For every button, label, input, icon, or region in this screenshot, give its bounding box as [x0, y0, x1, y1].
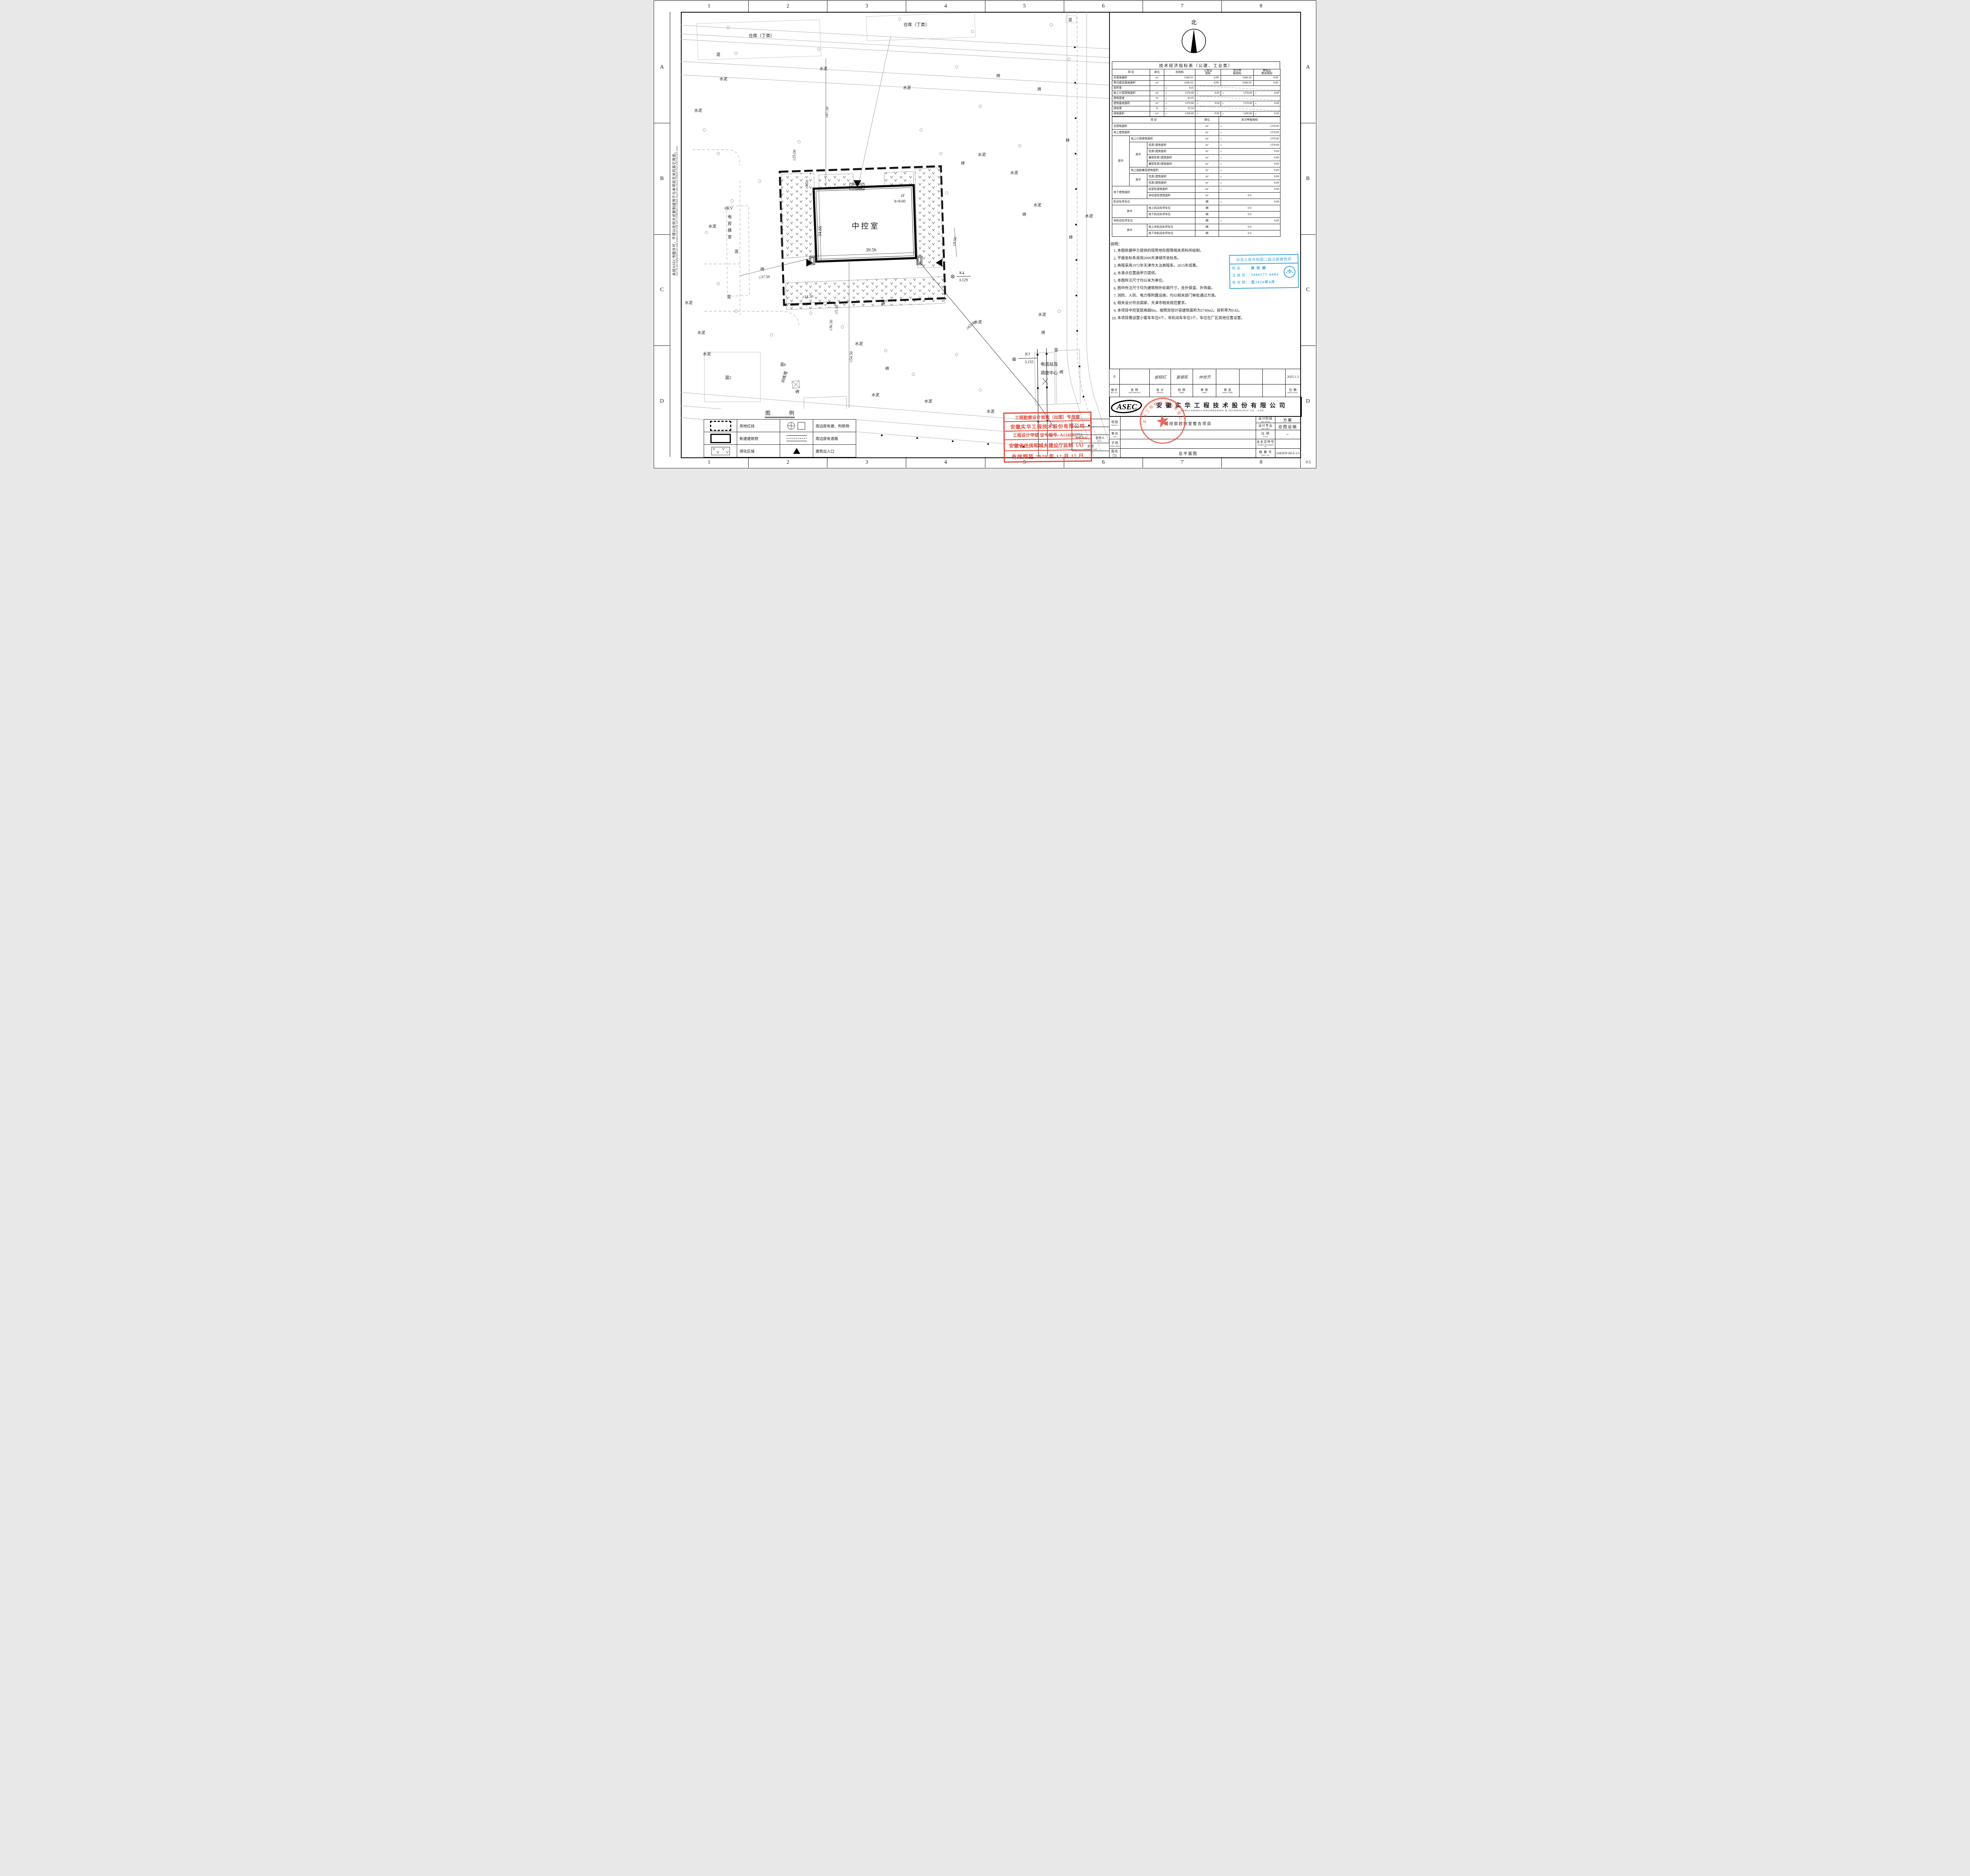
table-cell: 性质2建筑面积	[1147, 180, 1195, 186]
table-cell: 0.0	[1219, 230, 1280, 236]
grid-ref: C	[1300, 234, 1316, 346]
plan-label: 水泥	[903, 85, 911, 90]
legend-label: 建筑出入口	[813, 445, 856, 457]
table-cell: 项 目	[1112, 117, 1195, 123]
grid-band-left: ABCD	[654, 12, 670, 457]
drawing-sheet: 12345678 12345678 ABCD ABCD 0.5 未经ASEC书面…	[653, 0, 1317, 469]
legend-symbol-green-icon	[704, 447, 737, 455]
plan-label: 水泥	[1033, 202, 1041, 208]
grid-ref: 6	[1064, 1, 1143, 12]
plan-label: 混	[734, 249, 738, 254]
table-cell: ≤0.41	[1164, 85, 1195, 91]
north-arrow: 北	[1180, 18, 1208, 56]
table-cell: ≤0.00	[1254, 91, 1280, 96]
table-cell: ≥1200.00	[1221, 111, 1254, 116]
plan-label: 砖	[760, 267, 764, 272]
grid-ref: 5	[985, 1, 1064, 12]
grid-ref: 7	[1143, 457, 1221, 468]
plan-label: 39.56	[866, 247, 876, 253]
table-cell: m²	[1195, 192, 1219, 199]
table-cell: 0.00	[1195, 80, 1221, 85]
ownerdoc-value	[1275, 439, 1301, 449]
table-cell: m²	[1195, 148, 1219, 154]
table-cell: m²	[1195, 161, 1219, 167]
unit-label-cell: 单元UNIT	[1110, 430, 1121, 439]
table-cell: 性质2建筑面积	[1147, 148, 1195, 154]
table-cell: 容积率	[1112, 85, 1150, 91]
sheet-scale-corner: 0.5	[1300, 457, 1316, 468]
arch-name-label: 姓 名：	[1232, 265, 1251, 271]
table-cell: 辆	[1195, 217, 1219, 224]
table-cell: 地上鼓励兼容建筑面积	[1130, 167, 1195, 173]
signature-cell: 景银民	[1171, 368, 1193, 385]
table-cell: 其中	[1130, 173, 1147, 186]
signature-cell	[1263, 369, 1286, 384]
table-cell: m²	[1150, 91, 1164, 96]
countersign-empty-cell	[1091, 427, 1110, 435]
arch-name: 袁 宏 康	[1251, 265, 1266, 270]
red-stamp-line: 工程设计甲级 证书编号: A134005772	[1005, 430, 1091, 440]
table-cell: ≤0.00	[1219, 167, 1280, 173]
plan-label: 器	[728, 228, 732, 233]
table-cell: m²	[1150, 101, 1164, 106]
stage-value: 方案	[1275, 416, 1301, 423]
plan-label: 中 控 室	[852, 222, 878, 230]
signature-cell: 仲世杰	[1193, 368, 1217, 385]
plan-label: 水泥	[703, 351, 711, 357]
table-cell: 地上建筑面积	[1112, 129, 1195, 136]
grid-ref: 4	[906, 457, 985, 468]
rev-header-cell	[1263, 384, 1286, 397]
rev-header-cell: 日 期ISSUE DATE.	[1286, 384, 1301, 397]
grid-ref: A	[1300, 12, 1316, 123]
table-cell: ≤1370.00	[1221, 101, 1254, 106]
table-cell: 界内建设用地面积	[1112, 80, 1150, 85]
table-cell: m²	[1150, 111, 1164, 116]
plan-label: ≥14.50	[802, 295, 813, 299]
table-cell: m²	[1195, 142, 1219, 148]
table-cell: 总建筑面积	[1112, 123, 1195, 129]
plan-label: 水泥	[872, 392, 879, 397]
plan-label: 砖	[1069, 235, 1073, 240]
table-cell: 地上计容建筑面积	[1130, 136, 1195, 142]
plan-label: ≥54.50	[849, 351, 853, 363]
table-cell: 非经营性建筑面积	[1147, 192, 1195, 199]
table-cell: 项 目	[1112, 69, 1150, 76]
dwgname-label-cell: 图名DWG . NAME	[1110, 449, 1121, 458]
table-cell: 性质1建筑面积	[1147, 142, 1195, 148]
grid-ref: C	[654, 234, 670, 346]
plan-label: 水泥	[1038, 312, 1046, 317]
table-cell: m²	[1150, 75, 1164, 80]
note-item: 9.本项目中控室层高超8m，按照双倍计容建筑面积为2740m2。容积率为0.82…	[1110, 307, 1295, 315]
table-cell: 地下非机动车停车位	[1147, 230, 1195, 236]
legend-symbol-entrance-icon	[780, 448, 813, 454]
table-cell: ≤1370.00	[1164, 101, 1195, 106]
red-stamp-line: 有效期至 2029 年 12 月 17 日	[1005, 449, 1091, 462]
table-cell: 3340.50	[1221, 75, 1254, 80]
workarea-label-cell: 子项WORK AREA	[1110, 439, 1121, 449]
dwgname-value: 总平面图	[1121, 449, 1256, 458]
plan-label: K3	[1025, 352, 1030, 357]
plan-label: 砖	[885, 366, 889, 371]
plan-label: 混	[1054, 348, 1058, 353]
table-cell: 兼容性质1建筑面积	[1147, 154, 1195, 161]
margin-disclaimer-en: NOT TO BE REPRODUCED NOR EMPLOYED FOR AN…	[676, 145, 678, 276]
plan-label: K4	[959, 271, 964, 275]
stage-label-cell: 设计阶段DES. STAGE	[1256, 416, 1275, 423]
arch-reg-number: 3400577-0004	[1251, 272, 1279, 277]
legend-label: 新建建筑物	[737, 432, 780, 445]
plan-label: 水泥	[1085, 214, 1093, 219]
plan-label: 水泥	[974, 319, 982, 325]
rev-number: 0	[1110, 369, 1120, 384]
signature-cell: 郝栩红	[1149, 368, 1171, 385]
rev-header-cell	[1240, 384, 1263, 397]
plan-label: ≥25.00	[792, 150, 797, 161]
plan-label: 水泥	[697, 330, 705, 335]
rev-header-cell: 审 定FINAL APPR.	[1216, 384, 1240, 397]
table-cell: 辆	[1195, 205, 1219, 211]
grid-ref: 8	[1221, 457, 1300, 468]
table-cell: m²	[1195, 180, 1219, 186]
table-cell: 其中	[1130, 142, 1147, 167]
plan-label: 砖	[996, 73, 1000, 78]
legend: 图 例 用地红线 周边原有建、构筑物 新建建筑物 周边原有道路	[704, 409, 856, 457]
table-cell: 机动车停车位	[1112, 199, 1195, 205]
arch-reg-label: 注 册 号：	[1232, 272, 1251, 278]
signature-cell	[1240, 369, 1263, 384]
table-cell: 地下机动车停车位	[1147, 211, 1195, 217]
note-item: 10.本项目需设置小客车车位6个，非机动车车位3个，车位在厂区其他位置设置。	[1110, 315, 1295, 322]
grid-ref: 7	[1143, 1, 1221, 12]
table-cell: 已发证 指标	[1195, 69, 1221, 76]
plan-label: 水泥	[924, 399, 932, 404]
site-plan: 仓库（丁类）仓库（丁类）混混水泥水泥水泥砖砖砖≥67.50≥25.00≥8.50…	[681, 12, 1109, 457]
legend-title: 图 例	[704, 409, 856, 416]
plan-label: 混	[727, 295, 731, 299]
table-cell	[1195, 106, 1280, 111]
revision-table: 0郝栩红景银民仲世杰2025.1.3版次REV. NO.说 明DESCRIPTI…	[1109, 369, 1301, 397]
plan-label: 3.155	[1025, 360, 1034, 364]
legend-label: 用地红线	[737, 420, 780, 432]
red-stamp-line: 安徽实华工程技术股份有限公司	[1005, 420, 1091, 431]
plan-label: 砖	[795, 389, 799, 394]
table-cell: 审批后 剩余指标	[1254, 69, 1280, 76]
grid-ref: A	[654, 12, 670, 123]
table-cell: ≥0.00	[1219, 217, 1280, 224]
table-cell: 地上机动车停车位	[1147, 205, 1195, 211]
speci-label-cell: 设计专业DES. SPECI	[1256, 423, 1275, 430]
plan-label: 混2	[725, 375, 732, 380]
table-cell: ≤1370.00	[1221, 91, 1254, 96]
table-cell: ≤0.00	[1219, 186, 1280, 192]
grid-ref: D	[1300, 345, 1316, 457]
table-cell: m²	[1195, 129, 1219, 136]
table-cell: %	[1150, 106, 1164, 111]
notes-title: 说明：	[1110, 241, 1295, 247]
north-label: 北	[1191, 20, 1197, 26]
table-cell: 地上计容建筑面积	[1112, 91, 1150, 96]
registered-architect-stamp: 中华人民共和国二级注册建筑师 姓 名： 袁 宏 康 注 册 号： 3400577…	[1229, 254, 1299, 289]
plan-label: 砖	[1041, 330, 1045, 335]
table-cell: 总指标	[1164, 69, 1195, 76]
plan-label: 砖	[1066, 138, 1070, 143]
plan-label: 调度中心	[1041, 370, 1058, 375]
speci-value: 总图运输	[1275, 423, 1301, 430]
arch-valid-label: 有 效 期：	[1232, 279, 1251, 285]
plan-label: ≥36.50	[829, 320, 833, 331]
plan-label: 砖	[1022, 212, 1026, 217]
plan-label: 水泥	[820, 66, 827, 71]
legend-symbol-redline-icon	[704, 421, 737, 431]
table-cell: 3340.50	[1221, 80, 1254, 85]
table-cell: 0.0	[1219, 224, 1280, 230]
table-cell: m²	[1195, 186, 1219, 192]
rev-header-cell: 版次REV. NO.	[1110, 384, 1120, 397]
grid-ref: 2	[748, 457, 827, 468]
company-round-seal: 安徽实华工程技术股份有限公司 ANHUI SHIHUA ENGINEERING …	[1134, 392, 1191, 449]
note-item: 8.相关设计符合国家、天津市相关规范要求。	[1110, 300, 1295, 307]
table-cell: 其中	[1112, 224, 1147, 236]
plan-label: ≥37.50	[759, 275, 770, 279]
table-cell: ≤0.00	[1219, 180, 1280, 186]
grid-ref: B	[1300, 123, 1316, 234]
table-cell	[1195, 96, 1280, 101]
table-cell: ≤0.00	[1219, 148, 1280, 154]
table-cell: 本次申 报指标	[1221, 69, 1254, 76]
plan-label: 砖	[1037, 87, 1041, 92]
table-cell: 其中	[1112, 205, 1147, 217]
grid-ref: 1	[670, 1, 748, 12]
table-cell: 辆	[1195, 199, 1219, 205]
plan-label: 水泥	[855, 341, 863, 346]
table-cell: ≥0.00	[1219, 199, 1280, 205]
table-cell: ≥0.00	[1254, 111, 1280, 116]
plan-label: 砖	[961, 161, 965, 166]
table-cell: ≤1370.00	[1219, 142, 1280, 148]
table-cell: ≤1370.00	[1219, 129, 1280, 136]
plan-label: ≥8.50	[805, 180, 809, 189]
workarea-value	[1121, 439, 1256, 449]
table-cell: ≤1370.00	[1164, 91, 1195, 96]
table-cell: m²	[1195, 173, 1219, 180]
plan-label: 室	[728, 234, 732, 240]
table-cell: m²	[1195, 136, 1219, 142]
table-cell: 建筑基底面积	[1112, 101, 1150, 106]
plan-label: 6KV	[725, 206, 733, 211]
plan-label: 仓库（丁类）	[749, 33, 775, 38]
plan-label: 混	[1068, 18, 1072, 22]
tech-table-title: 技术经济指标表（公建、工业类）	[1112, 61, 1280, 69]
table-cell: 性质1建筑面积	[1147, 173, 1195, 180]
table-cell: m²	[1195, 154, 1219, 161]
table-cell	[1195, 85, 1280, 91]
grid-ref: 8	[1221, 1, 1300, 12]
table-cell: 辆	[1195, 230, 1219, 236]
grid-band-right: ABCD	[1300, 12, 1316, 457]
grid-ref: 3	[827, 457, 906, 468]
table-cell: m²	[1195, 123, 1219, 129]
arch-valid-date: 至2026年4月	[1251, 279, 1275, 284]
tech-table-part1: 项 目单位总指标已发证 指标本次申 报指标审批后 剩余指标总用地面积m²3340…	[1112, 69, 1280, 117]
north-needle	[1191, 29, 1197, 53]
plan-label: 1F	[901, 194, 905, 198]
plan-label: 电	[728, 214, 732, 219]
table-cell: 经营性建筑面积	[1147, 186, 1195, 192]
table-cell: ≥0.00	[1195, 111, 1221, 116]
grid-ref: 3	[827, 1, 906, 12]
table-cell: ≤0.00	[1219, 173, 1280, 180]
table-cell: ≤41.05	[1164, 96, 1195, 101]
plan-label: 水泥	[694, 108, 702, 113]
table-cell: 0.00	[1195, 75, 1221, 80]
plan-label: 34.66	[817, 226, 823, 236]
plan-label: 水泥	[978, 152, 986, 157]
rev-header-cell: 说 明DESCRIPTION	[1120, 384, 1150, 397]
rev-header-cell: 审 核APPR.	[1193, 384, 1216, 397]
arch-stamp-emblem-icon	[1283, 265, 1296, 279]
grid-ref: B	[654, 123, 670, 234]
plan-label: ≥9.50	[952, 237, 958, 247]
table-cell: ≥35.50	[1164, 106, 1195, 111]
table-cell: ≥1200.00	[1164, 111, 1195, 116]
table-cell: 绿地率	[1112, 106, 1150, 111]
table-cell: 0.00	[1254, 75, 1280, 80]
plan-label: 混	[716, 52, 720, 57]
plan-rightcolumn-divider	[1109, 12, 1110, 369]
table-cell: 地下建筑面积	[1112, 186, 1147, 199]
note-item: 1.本图依据甲方提供的现势地形图等相关资料所绘制。	[1110, 247, 1295, 255]
plan-label: 容	[728, 221, 732, 226]
table-cell: m²	[1150, 80, 1164, 85]
plan-label: 水泥	[719, 76, 727, 82]
table-cell: 3340.50	[1164, 75, 1195, 80]
signature-cell	[1120, 369, 1150, 384]
tech-table-part2: 项 目单位本次申报指标总建筑面积m²≤1370.00地上建筑面积m²≤1370.…	[1112, 117, 1280, 237]
legend-label: 周边原有建、构筑物	[813, 420, 856, 432]
grid-band-bottom: 12345678	[670, 457, 1300, 468]
table-cell: 3340.50	[1164, 80, 1195, 85]
plan-label: 水泥	[708, 224, 716, 229]
plan-label: 3.129	[959, 278, 968, 282]
table-cell: 0.00	[1254, 80, 1280, 85]
table-cell: 0.0	[1219, 211, 1280, 217]
table-cell: ≤0.00	[1195, 101, 1221, 106]
red-stamp-line: 安徽省住房和城乡建设厅监制（A）	[1005, 438, 1091, 451]
table-cell: ≤0.00	[1219, 161, 1280, 167]
plan-label: 砖	[1059, 370, 1063, 375]
table-cell: ≤0.00	[1195, 91, 1221, 96]
legend-symbol-road-icon	[780, 435, 813, 441]
issue-date: 2025.1.3	[1286, 369, 1301, 384]
table-cell: 绿地面积	[1112, 111, 1150, 116]
plan-label: 砖	[881, 301, 885, 306]
table-cell: -	[1150, 85, 1164, 91]
grid-ref: 1	[670, 457, 748, 468]
table-cell: 辆	[1195, 211, 1219, 217]
table-cell: 本次申报指标	[1219, 117, 1280, 123]
table-cell: ≤0.00	[1219, 154, 1280, 161]
project-label-cell: 项目PROJECT	[1110, 416, 1121, 430]
arch-stamp-title: 中华人民共和国二级注册建筑师	[1230, 255, 1297, 264]
table-cell: 其中	[1112, 136, 1130, 186]
plan-label: 仓库（丁类）	[903, 22, 929, 27]
plan-label: 水泥	[987, 409, 994, 414]
table-cell: 总用地面积	[1112, 75, 1150, 80]
legend-label: 周边原有道路	[813, 432, 856, 445]
table-cell: 0.0	[1219, 205, 1280, 211]
grid-ref: 2	[748, 1, 827, 12]
table-cell: 地上非机动车停车位	[1147, 224, 1195, 230]
plan-label: ≥67.50	[825, 107, 829, 118]
countersign-sign-label: 会签人SIGN.	[1091, 435, 1110, 443]
table-cell: ≤1370.00	[1219, 123, 1280, 129]
scale-value: ~	[1275, 430, 1301, 439]
plan-label: 混6	[780, 362, 786, 367]
plan-label: h=8.60	[894, 199, 905, 204]
legend-symbol-newbuilding-icon	[704, 434, 737, 443]
table-cell: 兼容性质2建筑面积	[1147, 161, 1195, 167]
plan-label: 水泥	[685, 300, 693, 305]
countersign-empty-cell	[1091, 419, 1110, 427]
table-cell: m²	[1195, 167, 1219, 173]
plan-label: 训练塔	[780, 371, 789, 384]
signature-cell	[1216, 369, 1240, 384]
grid-band-top: 12345678	[670, 1, 1300, 12]
table-cell: 辆	[1195, 224, 1219, 230]
table-cell: 0.0	[1219, 192, 1280, 199]
table-cell: 非机动车停车位	[1112, 217, 1195, 224]
note-item: 7.消防、人防、电力等附属设施，均以相关部门审批通过为准。	[1110, 292, 1295, 300]
plan-label: 电话站及	[1041, 361, 1058, 367]
tech-indicator-table: 技术经济指标表（公建、工业类） 项 目单位总指标已发证 指标本次申 报指标审批后…	[1112, 61, 1280, 237]
scale-label-cell: 比 例SCALE	[1256, 430, 1275, 439]
ownerdoc-label-cell: 业主文件号OWNER'S DOCUMENT NO	[1256, 439, 1275, 449]
table-cell: 建筑密度	[1112, 96, 1150, 101]
plan-label: 水泥	[1010, 170, 1018, 175]
table-cell: 单位	[1195, 117, 1219, 123]
seal-star	[1155, 413, 1170, 428]
plan-label: ≥5.50	[834, 305, 839, 314]
grid-ref: D	[654, 345, 670, 457]
archive-number: 234585P-00-Z-1/1	[1275, 449, 1301, 458]
grid-ref: 4	[906, 1, 985, 12]
legend-label: 绿化区域	[737, 445, 780, 457]
table-cell: 单位	[1150, 69, 1164, 76]
archive-label-cell: 档 案 号DWG . NO.	[1256, 449, 1275, 458]
legend-symbol-existing-icon	[780, 420, 813, 431]
table-cell: %	[1150, 96, 1164, 101]
table-cell: ≤1370.00	[1219, 136, 1280, 142]
table-cell: ≤0.00	[1254, 101, 1280, 106]
qualification-red-stamp: 工程勘察设计资质（出图）专用章 安徽实华工程技术股份有限公司 工程设计甲级 证书…	[1003, 412, 1092, 463]
